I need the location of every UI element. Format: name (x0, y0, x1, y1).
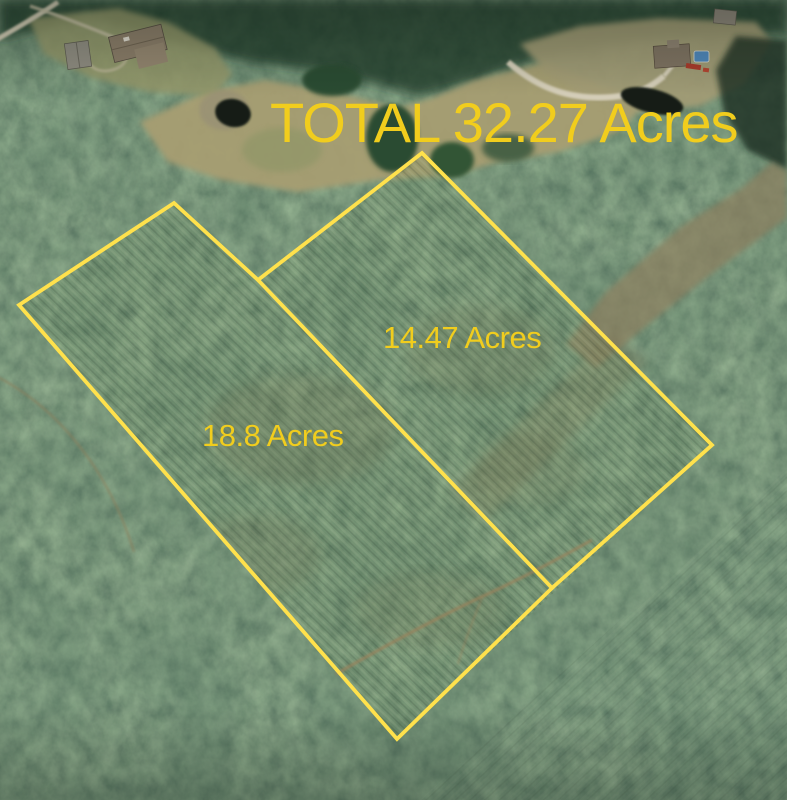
parcel-label-right: 14.47 Acres (383, 320, 541, 355)
map-canvas: TOTAL 32.27 Acres 14.47 Acres 18.8 Acres (0, 0, 787, 800)
total-acreage-title: TOTAL 32.27 Acres (270, 91, 738, 154)
satellite-parcel-map: TOTAL 32.27 Acres 14.47 Acres 18.8 Acres (0, 0, 787, 800)
parcel-label-left: 18.8 Acres (202, 418, 343, 453)
